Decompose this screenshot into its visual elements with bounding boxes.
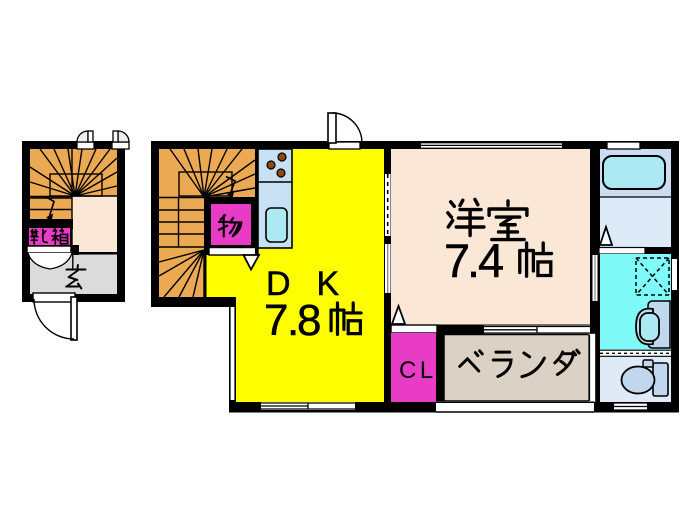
svg-text:8: 8 [297,296,321,345]
svg-text:7: 7 [264,296,288,345]
svg-text:CL: CL [399,357,437,384]
svg-text:4: 4 [478,234,504,287]
